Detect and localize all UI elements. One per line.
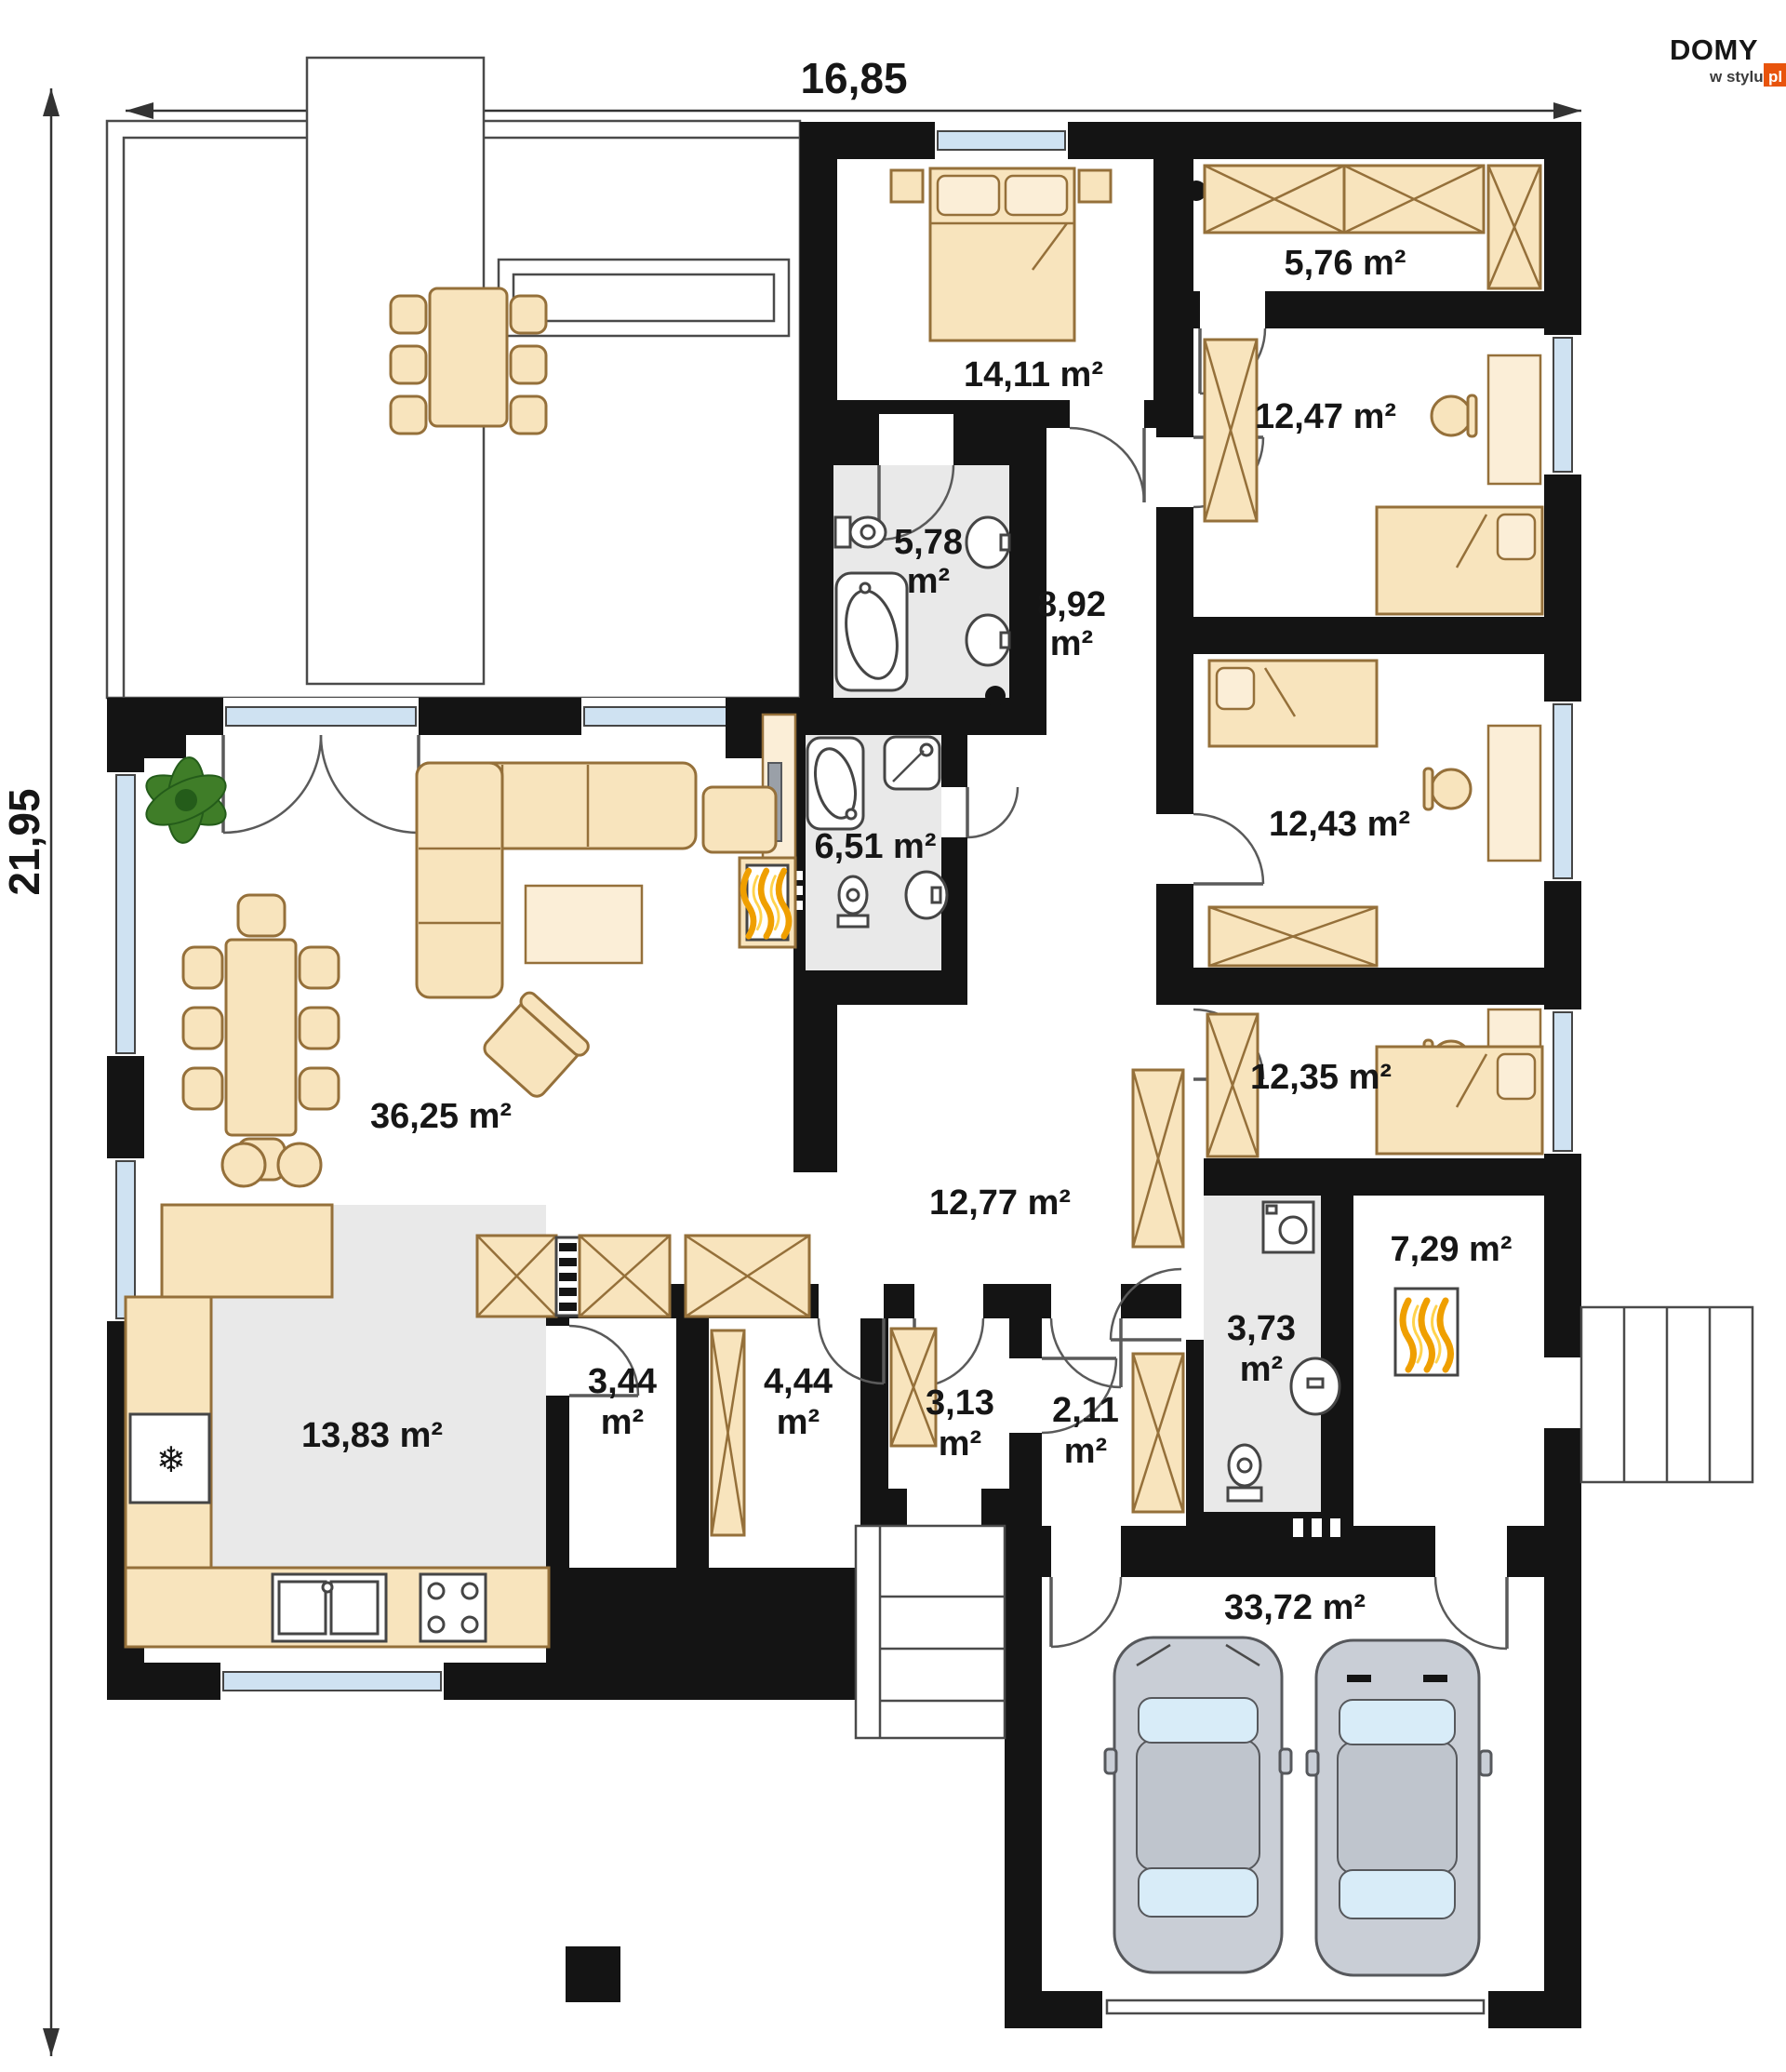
sink-icon (966, 615, 1009, 665)
label-wc-unit: m² (1240, 1350, 1283, 1389)
pillar-left (107, 698, 186, 758)
floor-plan-page: 16,85 21,95 DOMY w stylu pl (0, 0, 1786, 2072)
terrace-dining-set (391, 288, 546, 434)
label-hall-upper-value: 8,92 (1037, 585, 1106, 624)
bed (1377, 507, 1542, 614)
terrace (107, 58, 800, 698)
label-ensuite-unit: m² (907, 562, 950, 601)
label-walk-in: 5,76 m² (1285, 244, 1406, 283)
dimension-left: 21,95 (0, 88, 60, 2056)
master-bed (930, 168, 1074, 341)
label-corridor: 12,77 m² (929, 1183, 1071, 1223)
dimension-width-label: 16,85 (800, 54, 907, 102)
ottoman (703, 787, 776, 852)
label-closet-value: 4,44 (764, 1362, 833, 1401)
kitchen: ❄ (126, 1143, 549, 1647)
label-pantry-value: 3,44 (588, 1362, 657, 1401)
label-living: 36,25 m² (370, 1097, 512, 1136)
label-vestibule-unit: m² (939, 1424, 981, 1464)
label-hall-upper-unit: m² (1050, 624, 1093, 663)
desk (1488, 726, 1540, 861)
boiler-steps (1581, 1307, 1753, 1482)
fridge-icon: ❄ (130, 1414, 209, 1503)
label-bedroom-1: 12,47 m² (1255, 397, 1396, 436)
toilet-icon (1228, 1445, 1261, 1501)
bar-stool (222, 1143, 265, 1186)
label-boiler: 7,29 m² (1391, 1230, 1513, 1269)
boiler-furnace (1395, 1289, 1458, 1375)
label-bedroom-2: 12,43 m² (1269, 805, 1410, 844)
label-hall-small-unit: m² (1064, 1432, 1107, 1471)
office-chair (1432, 769, 1471, 809)
label-hall-small-value: 2,11 (1052, 1391, 1119, 1430)
label-bedroom-3: 12,35 m² (1250, 1058, 1392, 1097)
stove-icon (420, 1574, 486, 1641)
label-master: 14,11 m² (964, 355, 1103, 394)
window-living-west-1 (107, 772, 144, 1056)
office-chair (1432, 396, 1471, 435)
shower-icon (885, 737, 940, 789)
label-bathroom: 6,51 m² (815, 827, 937, 866)
pillar-garden (566, 1946, 620, 2002)
window-bedroom-1 (1544, 335, 1581, 475)
label-ensuite-value: 5,78 (894, 523, 963, 562)
brand-logo: DOMY w stylu pl (1670, 33, 1786, 87)
kitchen-sink-icon (273, 1574, 386, 1641)
bathtub-icon (807, 738, 863, 829)
bathtub-icon (836, 573, 907, 690)
kitchen-peninsula (162, 1205, 332, 1297)
sink-icon (966, 517, 1009, 568)
label-wc-value: 3,73 (1227, 1309, 1296, 1348)
garage-door (1107, 2000, 1484, 2013)
car-icon (1307, 1640, 1491, 1975)
washer-icon (1263, 1202, 1313, 1252)
sink-icon (906, 872, 947, 918)
brand-name: DOMY (1670, 33, 1758, 66)
label-vestibule-value: 3,13 (926, 1384, 994, 1423)
nightstand-left (891, 170, 923, 202)
toilet-icon (838, 876, 868, 927)
label-kitchen: 13,83 m² (301, 1416, 443, 1455)
fireplace (740, 858, 795, 947)
svg-text:❄: ❄ (156, 1441, 186, 1480)
toilet-icon (835, 517, 886, 547)
room-hall-upper-low (967, 735, 1156, 1005)
window-bedroom-2 (1544, 702, 1581, 881)
brand-subtitle: w stylu (1709, 68, 1764, 86)
floor-plan-drawing: 16,85 21,95 DOMY w stylu pl (0, 0, 1786, 2072)
window-master (935, 122, 1068, 159)
label-closet-unit: m² (777, 1403, 820, 1442)
window-kitchen-south (220, 1663, 444, 1700)
desk (1488, 355, 1540, 484)
bed (1209, 661, 1377, 746)
room-pantry (569, 1318, 676, 1568)
corridor-wardrobes (477, 1236, 809, 1317)
window-bedroom-3 (1544, 1009, 1581, 1154)
attic-ladder-icon (556, 1237, 580, 1316)
label-garage: 33,72 m² (1224, 1588, 1366, 1627)
column-dot-1 (985, 686, 1006, 706)
car-icon (1105, 1638, 1291, 1972)
vent-grille (1293, 1518, 1340, 1537)
sink-icon (1291, 1358, 1339, 1414)
nightstand-right (1079, 170, 1111, 202)
brand-tld: pl (1768, 68, 1782, 86)
coffee-table (526, 886, 642, 963)
bar-stool (278, 1143, 321, 1186)
bed (1377, 1047, 1542, 1154)
dimension-height-label: 21,95 (0, 788, 48, 895)
entrance-steps (856, 1526, 1005, 1738)
label-pantry-unit: m² (601, 1403, 644, 1442)
